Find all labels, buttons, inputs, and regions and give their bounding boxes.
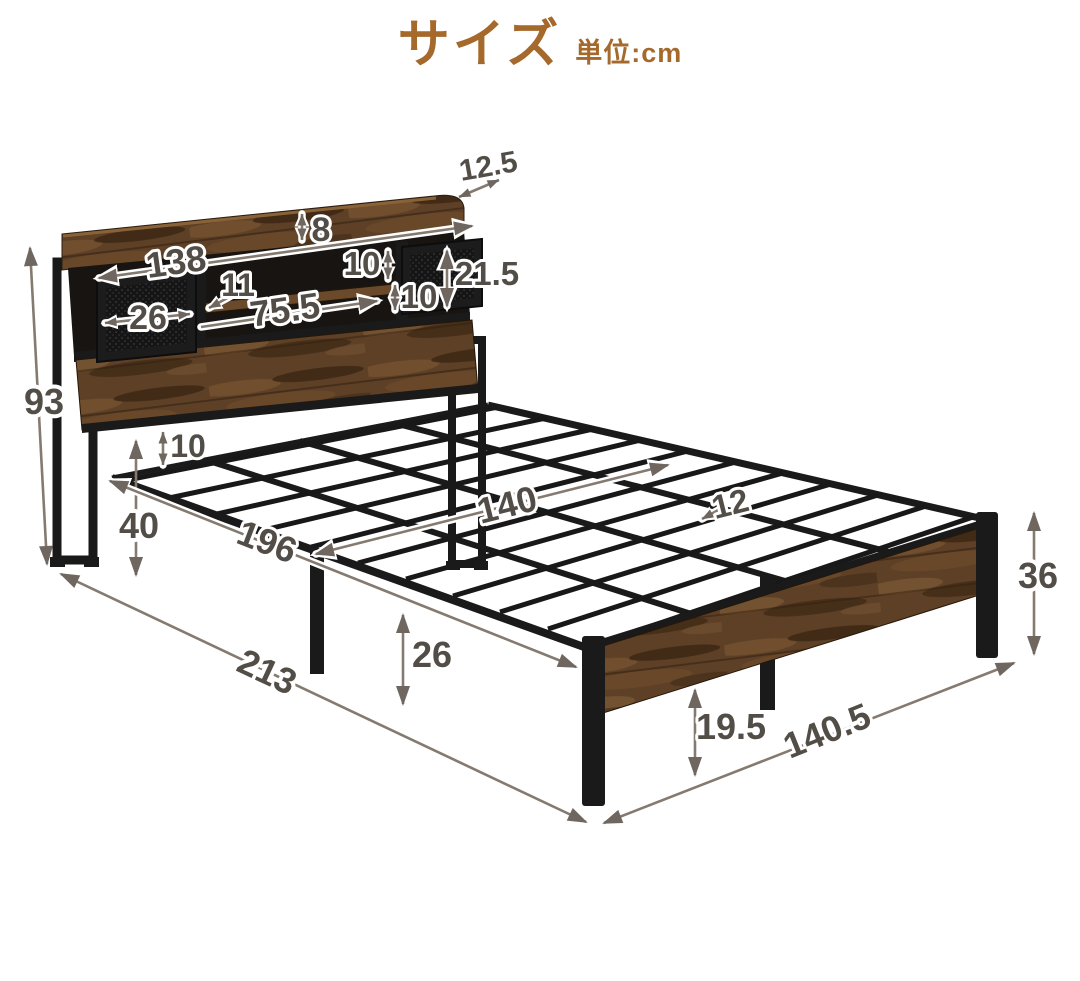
dim-label: 140.5 — [777, 695, 876, 767]
dim-label: 12 — [708, 481, 753, 526]
dim-label: 26 — [412, 634, 452, 675]
dim-footboard-height: 36 — [1018, 513, 1058, 654]
unit-label: 単位:cm — [575, 31, 682, 70]
dim-label: 10 — [344, 245, 381, 282]
dim-label: 10 — [170, 428, 206, 464]
dim-label: 138 — [143, 237, 208, 286]
dimension-annotations: 12.5 8 138 11 26 — [24, 145, 1058, 823]
footboard-left-post — [582, 636, 605, 806]
dim-label: 26 — [129, 299, 167, 337]
dim-label: 196 — [232, 512, 303, 572]
size-diagram-page: サイズ単位:cm — [0, 0, 1080, 981]
dim-floor-to-slat: 40 — [119, 441, 159, 575]
dim-shelf-depth: 12.5 — [457, 145, 520, 197]
footboard-right-post — [976, 512, 998, 658]
dim-label: 213 — [231, 640, 303, 703]
dim-label: 93 — [24, 381, 64, 422]
page-title: サイズ — [398, 2, 561, 77]
dim-label: 10 — [401, 278, 438, 315]
leg-foot — [474, 561, 488, 570]
leg-foot — [84, 557, 99, 567]
dim-under-clearance: 26 — [403, 615, 452, 704]
dim-footboard-clearance: 19.5 — [695, 690, 766, 775]
bed-size-diagram: 12.5 8 138 11 26 — [0, 0, 1080, 981]
dim-label: 36 — [1018, 555, 1058, 596]
dim-frame-slat-gap: 10 — [163, 428, 206, 465]
leg-foot — [50, 557, 65, 567]
leg-foot — [446, 561, 460, 570]
dim-label: 12.5 — [457, 145, 520, 188]
dim-label: 19.5 — [696, 706, 766, 747]
header: サイズ単位:cm — [0, 0, 1080, 77]
dim-label: 40 — [119, 505, 159, 546]
dim-label: 21.5 — [455, 255, 519, 292]
dim-shelf-lower-height: 10 — [395, 278, 437, 315]
